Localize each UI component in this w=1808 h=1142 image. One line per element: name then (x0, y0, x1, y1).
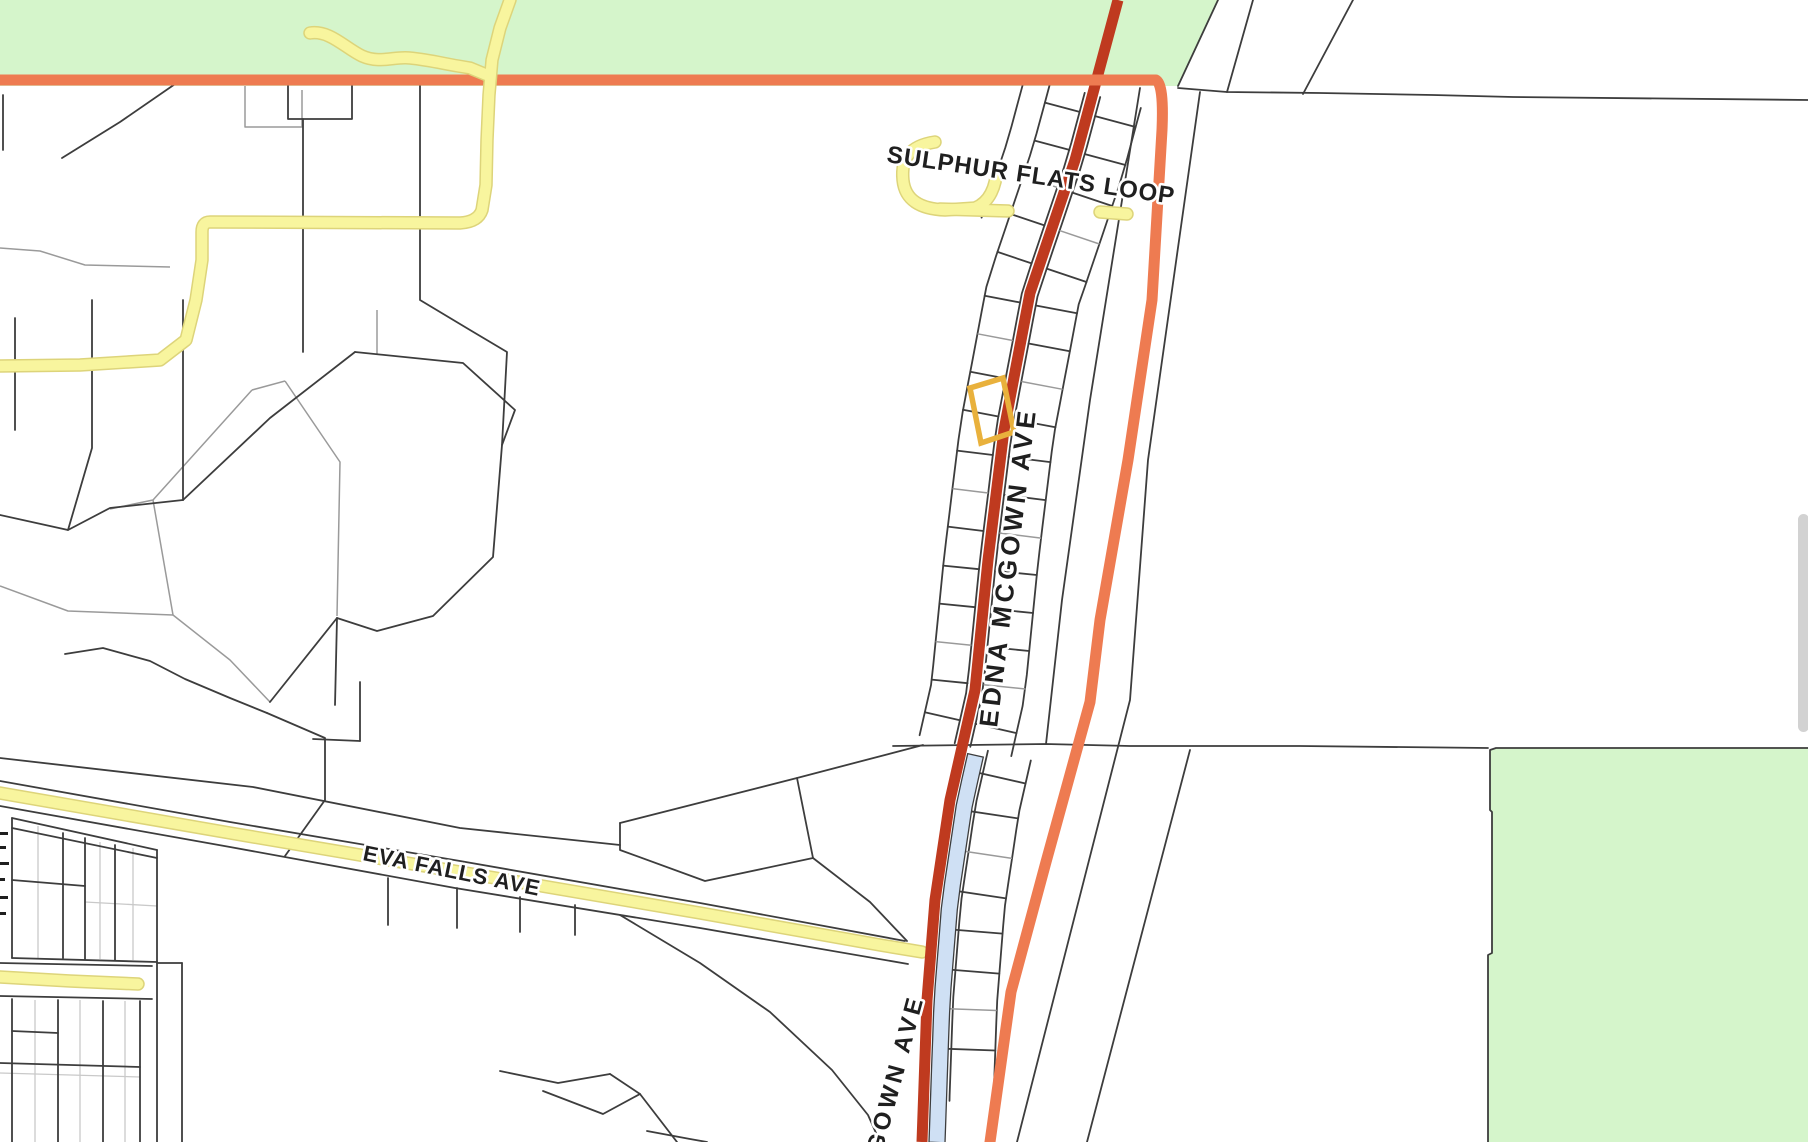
parcel-lines-dark (1178, 88, 1808, 100)
strip-parcel-ladders (978, 334, 1013, 341)
scrollbar-thumb[interactable] (1798, 514, 1808, 732)
strip-parcel-ladders (957, 451, 993, 455)
road-fill (1100, 212, 1127, 214)
parcel-lines-dark (65, 648, 267, 713)
strip-parcel-ladders (1010, 214, 1044, 226)
strip-parcel-ladders (925, 712, 960, 720)
parcel-lines-dark (335, 618, 337, 705)
clipped-label-fragments (0, 912, 6, 915)
parcel-lines-dark (288, 86, 352, 119)
parcel-lines-dark (0, 963, 152, 966)
parcel-lines-dark (1227, 0, 1253, 92)
strip-parcel-ladders (985, 296, 1020, 303)
clipped-label-fragments (0, 846, 6, 849)
clipped-label-fragments (0, 896, 8, 899)
parcel-lines-dark (0, 996, 152, 999)
parcel-lines-dark (500, 1071, 610, 1083)
parcel-lines-dark (12, 880, 85, 886)
road-fill (0, 977, 138, 984)
strip-parcel-ladders (948, 527, 984, 531)
parcel-lines-dark (183, 352, 355, 500)
strip-parcel-ladders (1047, 269, 1087, 282)
parcel-lines-dark (337, 352, 515, 631)
parcel-lines-dark (1303, 0, 1353, 94)
parcel-lines-dark (313, 739, 360, 741)
parcel-lines-gray (0, 1073, 140, 1077)
strip-parcel-ladders (1060, 231, 1100, 244)
strip-parcel-ladders (1045, 103, 1080, 112)
strip-parcel-ladders (932, 680, 968, 684)
strip-parcel-ladders (1095, 116, 1136, 127)
parcel-lines-gray (173, 615, 270, 702)
parcel-lines-gray (0, 586, 173, 615)
strip-parcel-ladders (953, 489, 989, 493)
clipped-label-fragments (0, 832, 9, 915)
selected-parcel-highlight[interactable] (970, 378, 1014, 443)
strip-parcel-ladders (1021, 382, 1062, 390)
parcel-lines-dark (620, 823, 813, 881)
parcel-lines-dark (0, 1063, 140, 1067)
parcel-lines-gray (252, 381, 285, 390)
clipped-label-fragments (0, 862, 9, 865)
strip-parcel-ladders (963, 410, 998, 417)
strip-parcel-ladders (1029, 344, 1070, 352)
parcel-lines-dark (543, 1091, 640, 1114)
strip-parcel-ladders (936, 642, 972, 646)
parcel-lines-dark (62, 82, 178, 158)
strip-parcel-ladders (943, 566, 979, 570)
strip-parcel-ladders (1036, 306, 1077, 314)
clipped-label-fragments (0, 832, 8, 835)
parcel-lines-gray (85, 902, 157, 906)
parcel-lines-gray (110, 390, 252, 509)
parcel-lines-dark (68, 300, 92, 530)
parcel-lines-dark (12, 1031, 58, 1033)
parcel-lines-dark (620, 745, 923, 823)
parcel-lines-gray (285, 381, 340, 616)
parcel-lines-dark (0, 758, 620, 845)
map-svg[interactable]: SULPHUR FLATS LOOP EDNA MCGOWN AVE GOWN … (0, 0, 1808, 1142)
parcel-lines-dark (893, 744, 1488, 748)
strip-parcel-ladders (998, 252, 1032, 264)
strip-parcel-ladders (1035, 141, 1070, 150)
strip-parcel-ladders (939, 604, 975, 608)
map-canvas[interactable]: SULPHUR FLATS LOOP EDNA MCGOWN AVE GOWN … (0, 0, 1808, 1142)
parcel-lines-gray (0, 248, 170, 267)
parcel-lines-dark (0, 806, 908, 964)
parcel-lines-dark (797, 778, 813, 858)
clipped-label-fragments (0, 878, 5, 881)
parcel-lines-dark (610, 1074, 677, 1142)
strip-parcel-ladders (1085, 154, 1126, 165)
parcel-lines-dark (270, 618, 337, 702)
park-area-bottom-right (1488, 748, 1808, 1142)
road-fill (940, 209, 1008, 211)
parcel-lines-dark (647, 1131, 707, 1142)
parcel-lines-dark (620, 915, 880, 1142)
park-area-top (0, 0, 1218, 86)
parcel-lines-gray (153, 500, 173, 615)
parcel-lines-gray (245, 86, 302, 127)
parcel-lines-dark (813, 858, 907, 941)
